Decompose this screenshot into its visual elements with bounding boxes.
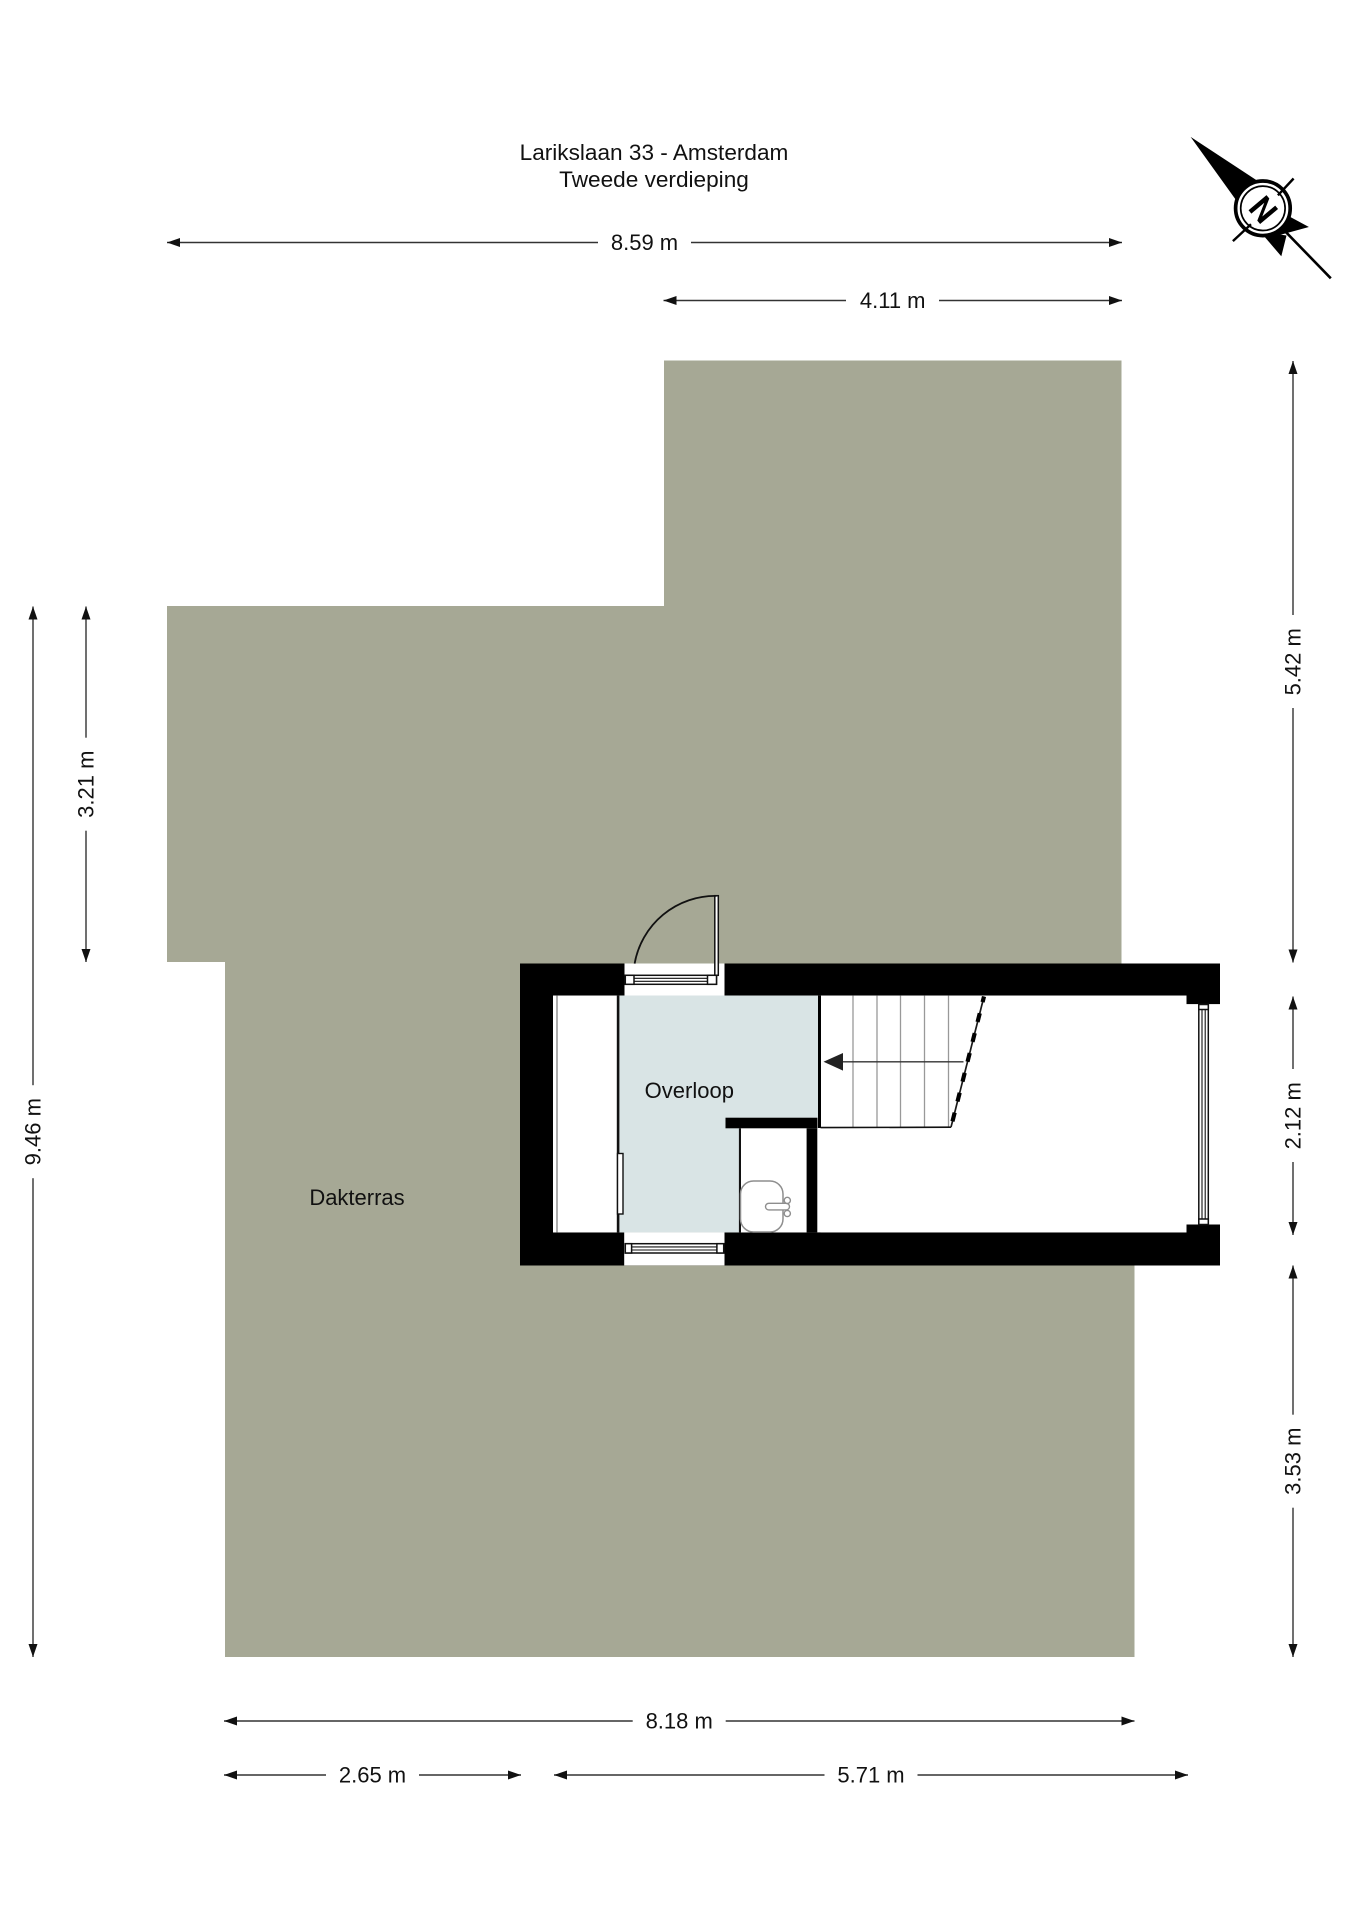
svg-text:Dakterras: Dakterras [309,1185,404,1210]
svg-text:Larikslaan 33 - Amsterdam: Larikslaan 33 - Amsterdam [520,140,789,165]
svg-text:3.53 m: 3.53 m [1281,1428,1306,1495]
svg-text:9.46 m: 9.46 m [21,1098,46,1165]
svg-text:2.65 m: 2.65 m [339,1763,406,1788]
svg-text:Overloop: Overloop [645,1078,734,1103]
svg-text:5.42 m: 5.42 m [1281,628,1306,695]
svg-text:8.59 m: 8.59 m [611,230,678,255]
svg-text:2.12 m: 2.12 m [1281,1082,1306,1149]
svg-text:Tweede verdieping: Tweede verdieping [559,167,749,192]
svg-text:5.71 m: 5.71 m [837,1763,904,1788]
svg-text:4.11 m: 4.11 m [860,288,926,313]
svg-text:3.21 m: 3.21 m [74,751,99,818]
svg-text:8.18 m: 8.18 m [646,1709,713,1734]
